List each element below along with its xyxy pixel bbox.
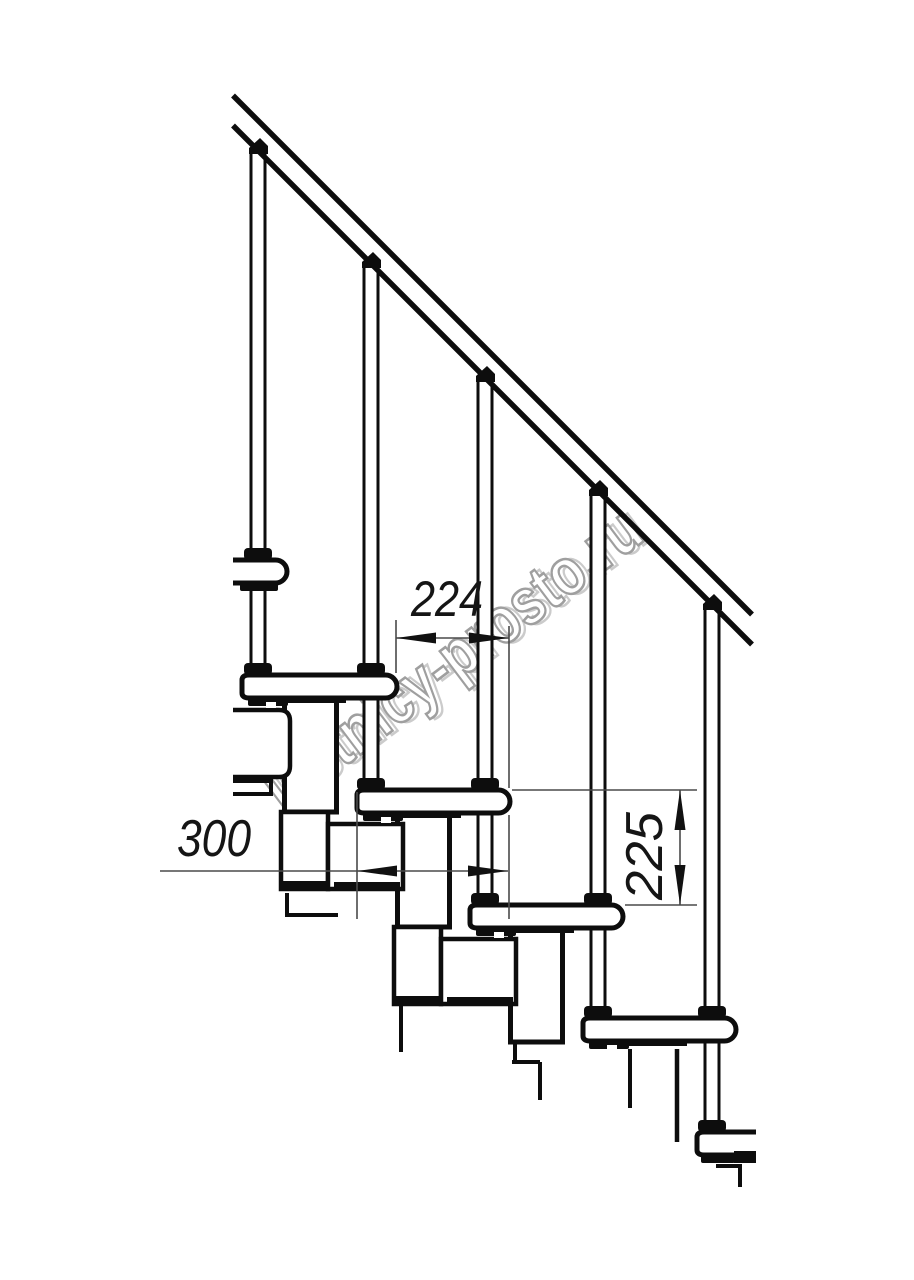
tread — [583, 1018, 736, 1041]
block-base-strip — [334, 882, 400, 891]
stringer-column — [285, 700, 337, 812]
post-connector — [698, 1006, 726, 1018]
post-connector — [584, 893, 612, 905]
flange — [589, 1039, 687, 1051]
tread — [242, 675, 397, 698]
baluster-5 — [705, 608, 719, 1133]
stringer-column — [511, 930, 563, 1042]
block-base-strip — [447, 997, 513, 1006]
dimension-label-225: 225 — [616, 811, 674, 901]
post-connector — [244, 663, 272, 675]
post-connector — [244, 548, 272, 560]
staircase-drawing: lestnicy-prosto.ru lestnicy-prosto.ru — [0, 0, 914, 1280]
baluster-3 — [478, 380, 492, 906]
baluster-4 — [591, 494, 605, 1019]
stringer-block — [441, 939, 516, 1004]
post-connector — [471, 893, 499, 905]
stringer-block-cropped — [233, 710, 290, 777]
post-connector — [471, 778, 499, 790]
stringer-block — [281, 812, 328, 889]
tread — [357, 790, 510, 813]
staircase-drawing-page: lestnicy-prosto.ru lestnicy-prosto.ru — [0, 0, 914, 1280]
arrowhead-down — [675, 865, 686, 905]
block-base-strip — [233, 775, 273, 783]
baluster-2 — [364, 266, 378, 791]
dimension-label-224: 224 — [410, 571, 483, 627]
block-base-strip — [282, 881, 327, 891]
stringer-block — [328, 824, 403, 889]
flange — [240, 582, 278, 591]
post-connector — [698, 1120, 726, 1132]
tread-top-cropped — [233, 560, 287, 583]
rail-connector — [249, 138, 268, 154]
post-connector — [584, 1006, 612, 1018]
cropped-module-line — [512, 1043, 540, 1100]
cropped-module-line — [716, 1166, 740, 1187]
stringer-block — [394, 927, 441, 1004]
baluster-1 — [251, 152, 265, 676]
arrowhead-up — [675, 790, 686, 830]
post-connector — [357, 663, 385, 675]
tread — [470, 905, 623, 928]
block-lip — [287, 893, 338, 915]
dimension-label-300: 300 — [177, 810, 251, 868]
post-connector — [357, 778, 385, 790]
